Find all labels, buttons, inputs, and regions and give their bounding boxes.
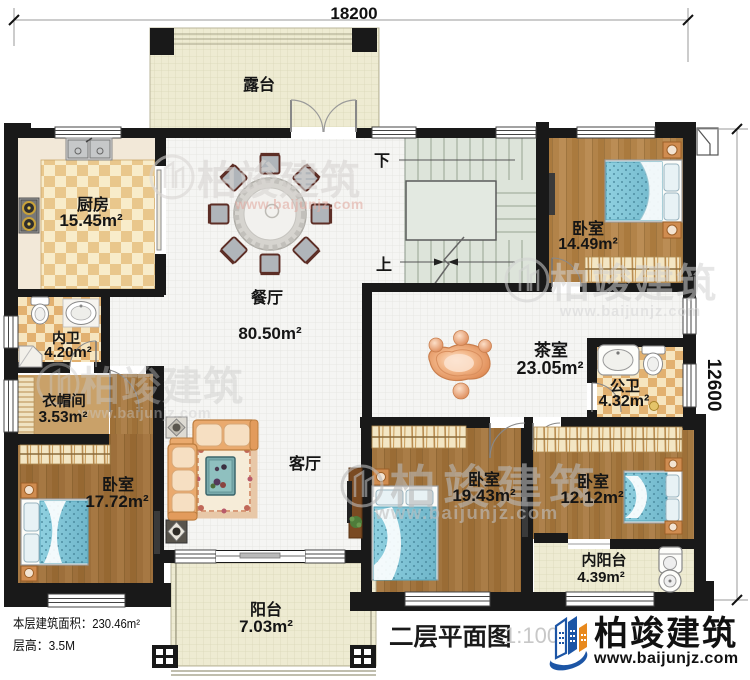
svg-text:7.03m²: 7.03m² — [239, 617, 293, 636]
svg-text:18200: 18200 — [330, 4, 377, 23]
svg-text:露台: 露台 — [243, 75, 275, 94]
svg-text:www.baijunjz.com: www.baijunjz.com — [234, 196, 364, 212]
svg-text:柏竣建筑: 柏竣建筑 — [550, 262, 718, 306]
svg-text:柏竣建筑: 柏竣建筑 — [80, 365, 244, 409]
svg-text:餐厅: 餐厅 — [250, 288, 283, 307]
svg-text:下: 下 — [374, 153, 390, 170]
svg-text:3.53m²: 3.53m² — [38, 409, 87, 426]
svg-text:19.43m²: 19.43m² — [452, 486, 516, 505]
svg-text:4.20m²: 4.20m² — [44, 344, 92, 361]
svg-text:12600: 12600 — [703, 359, 724, 412]
svg-text:14.49m²: 14.49m² — [558, 236, 618, 253]
svg-text:www.baijunjz.com: www.baijunjz.com — [77, 406, 211, 422]
svg-text:15.45m²: 15.45m² — [59, 211, 123, 230]
svg-text:17.72m²: 17.72m² — [85, 492, 149, 511]
svg-text:上: 上 — [376, 256, 392, 274]
svg-text:内阳台: 内阳台 — [581, 551, 626, 569]
svg-text:4.39m²: 4.39m² — [577, 569, 625, 586]
svg-text:本层建筑面积：230.46m²: 本层建筑面积：230.46m² — [13, 616, 141, 631]
svg-text:柏竣建筑: 柏竣建筑 — [594, 614, 738, 653]
svg-text:www.baijunjz.com: www.baijunjz.com — [559, 304, 701, 320]
svg-text:层高：3.5M: 层高：3.5M — [13, 637, 75, 653]
svg-text:23.05m²: 23.05m² — [516, 358, 583, 378]
svg-text:茶室: 茶室 — [534, 340, 568, 360]
svg-text:衣帽间: 衣帽间 — [42, 392, 86, 410]
svg-text:4.32m²: 4.32m² — [599, 393, 650, 410]
svg-text:80.50m²: 80.50m² — [238, 324, 302, 343]
svg-text:12.12m²: 12.12m² — [560, 488, 624, 507]
svg-text:二层平面图: 二层平面图 — [389, 624, 512, 651]
svg-text:www.baijunjz.com: www.baijunjz.com — [593, 650, 739, 667]
svg-text:1:100: 1:100 — [504, 623, 559, 648]
svg-text:客厅: 客厅 — [289, 454, 321, 473]
svg-text:www.baijunjz.com: www.baijunjz.com — [374, 502, 559, 523]
